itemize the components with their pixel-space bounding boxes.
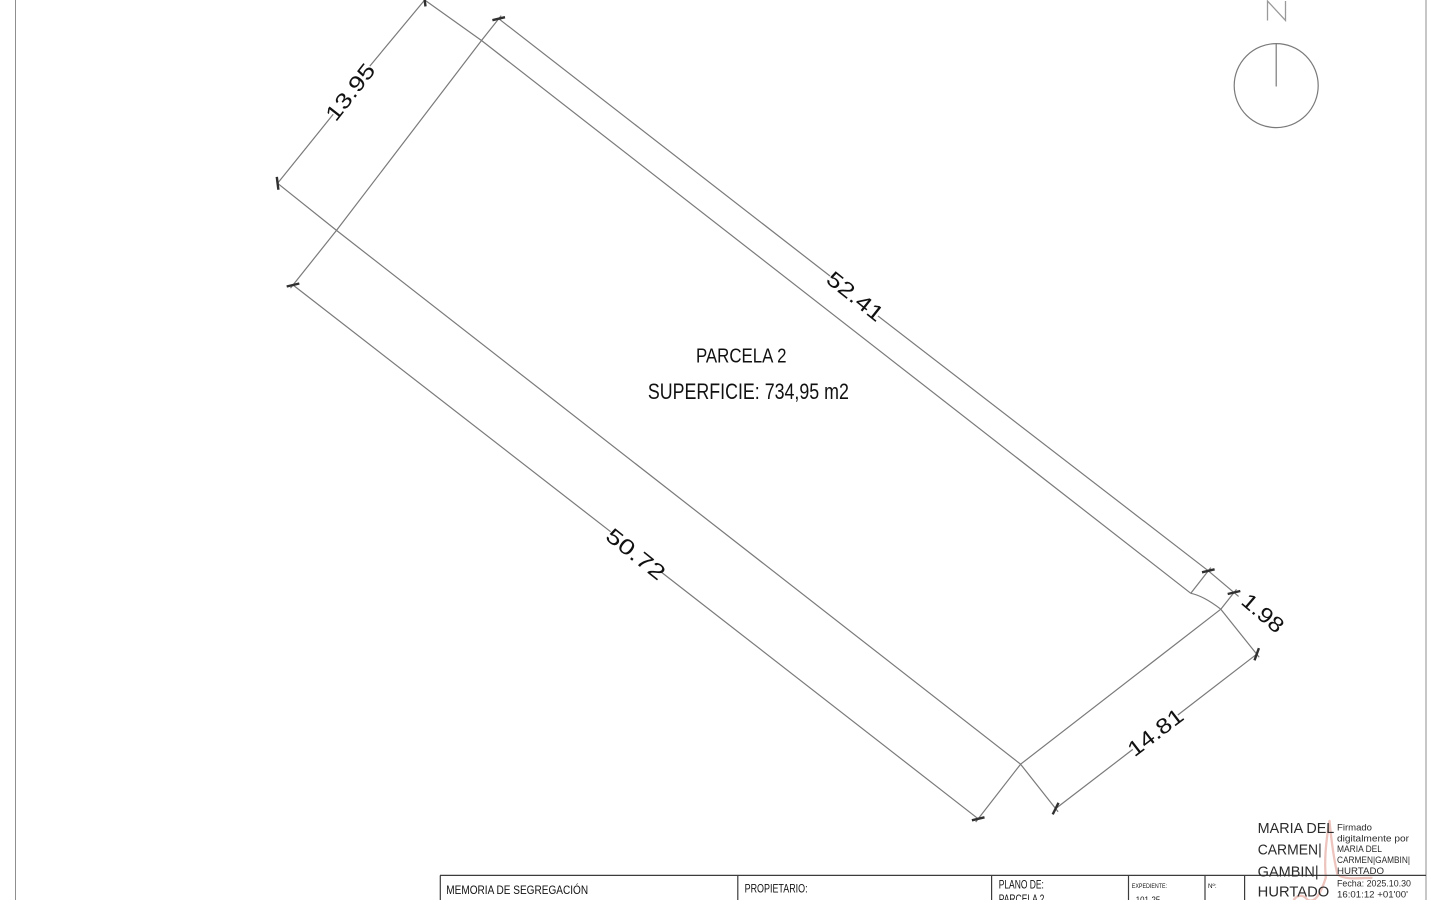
- svg-text:MEMORIA DE SEGREGACIÓN: MEMORIA DE SEGREGACIÓN: [446, 882, 588, 897]
- svg-text:Firmado: Firmado: [1337, 823, 1372, 833]
- svg-text:SUPERFICIE: 734,95 m2: SUPERFICIE: 734,95 m2: [648, 379, 849, 404]
- svg-text:CARMEN|: CARMEN|: [1258, 843, 1322, 859]
- svg-text:Fecha: 2025.10.30: Fecha: 2025.10.30: [1337, 878, 1411, 888]
- svg-text:PLANO DE:: PLANO DE:: [999, 880, 1044, 892]
- svg-text:16:01:12 +01'00': 16:01:12 +01'00': [1337, 889, 1408, 899]
- svg-text:CARMEN|GAMBIN|: CARMEN|GAMBIN|: [1337, 855, 1410, 865]
- svg-text:PARCELA 2: PARCELA 2: [999, 894, 1045, 900]
- svg-text:PARCELA 2: PARCELA 2: [696, 344, 787, 367]
- svg-text:HURTADO: HURTADO: [1258, 885, 1330, 900]
- svg-text:101-25: 101-25: [1136, 895, 1161, 900]
- svg-text:MARIA DEL: MARIA DEL: [1258, 821, 1335, 837]
- svg-text:MARIA DEL: MARIA DEL: [1337, 844, 1382, 854]
- svg-text:EXPEDIENTE:: EXPEDIENTE:: [1132, 883, 1167, 890]
- svg-text:digitalmente por: digitalmente por: [1337, 834, 1409, 844]
- svg-text:PROPIETARIO:: PROPIETARIO:: [745, 883, 808, 896]
- svg-text:HURTADO: HURTADO: [1337, 866, 1384, 876]
- svg-text:Nº:: Nº:: [1208, 883, 1217, 890]
- svg-text:GAMBIN|: GAMBIN|: [1258, 864, 1319, 880]
